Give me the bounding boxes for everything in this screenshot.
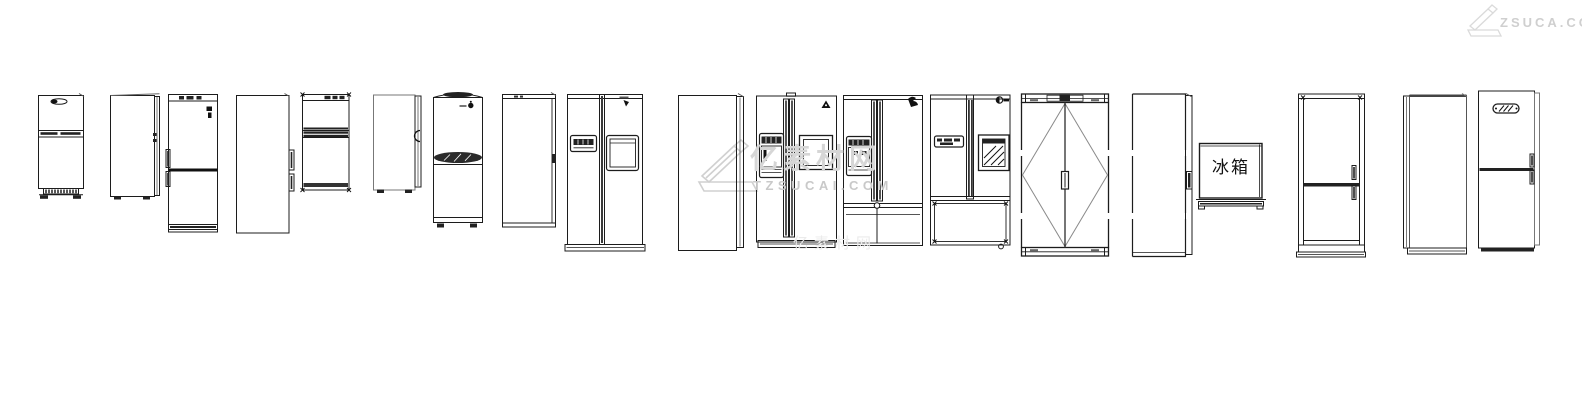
watermark-brand-url: TZSUCAI.COM — [753, 179, 893, 192]
fridge-box-label: 冰箱 — [1199, 160, 1263, 177]
cad-drawing-canvas — [0, 0, 1582, 402]
watermark-logo-icon — [699, 140, 757, 191]
fridge-top-freezer-vent — [39, 94, 85, 199]
fridge-single-door — [503, 93, 557, 228]
watermark-brand-cn: 亿素材网 — [750, 145, 882, 173]
fridge-bottom-freezer-badge — [1479, 91, 1540, 252]
fridge-side-view-gray — [374, 95, 422, 193]
corner-watermark-logo-icon — [1468, 5, 1501, 36]
cad-block-gallery: 亿素材网 TZSUCAI.COM 亿素材网 ZSUCA.CO 冰箱 — [0, 0, 1582, 402]
fridge-arch-top-lens — [434, 92, 483, 228]
watermark-faint-tile: 亿素材网 — [793, 236, 877, 251]
fridge-side-panel-handles — [237, 94, 295, 234]
fridge-compact-top-freezer — [301, 93, 352, 193]
fridge-panel-dashed — [1133, 94, 1193, 257]
fridge-side-view — [111, 94, 160, 200]
watermark-corner-text: ZSUCA.CO — [1500, 16, 1582, 29]
fridge-double-door-diamond — [1022, 94, 1109, 256]
fridge-bottom-freezer-left-handles — [166, 95, 218, 233]
fridge-side-view-left-edge — [1404, 94, 1468, 255]
fridge-side-by-side-dispenser — [565, 95, 645, 252]
fridge-side-by-side-hatch-window — [931, 95, 1011, 249]
fridge-framed-bottom-freezer — [1297, 94, 1366, 257]
